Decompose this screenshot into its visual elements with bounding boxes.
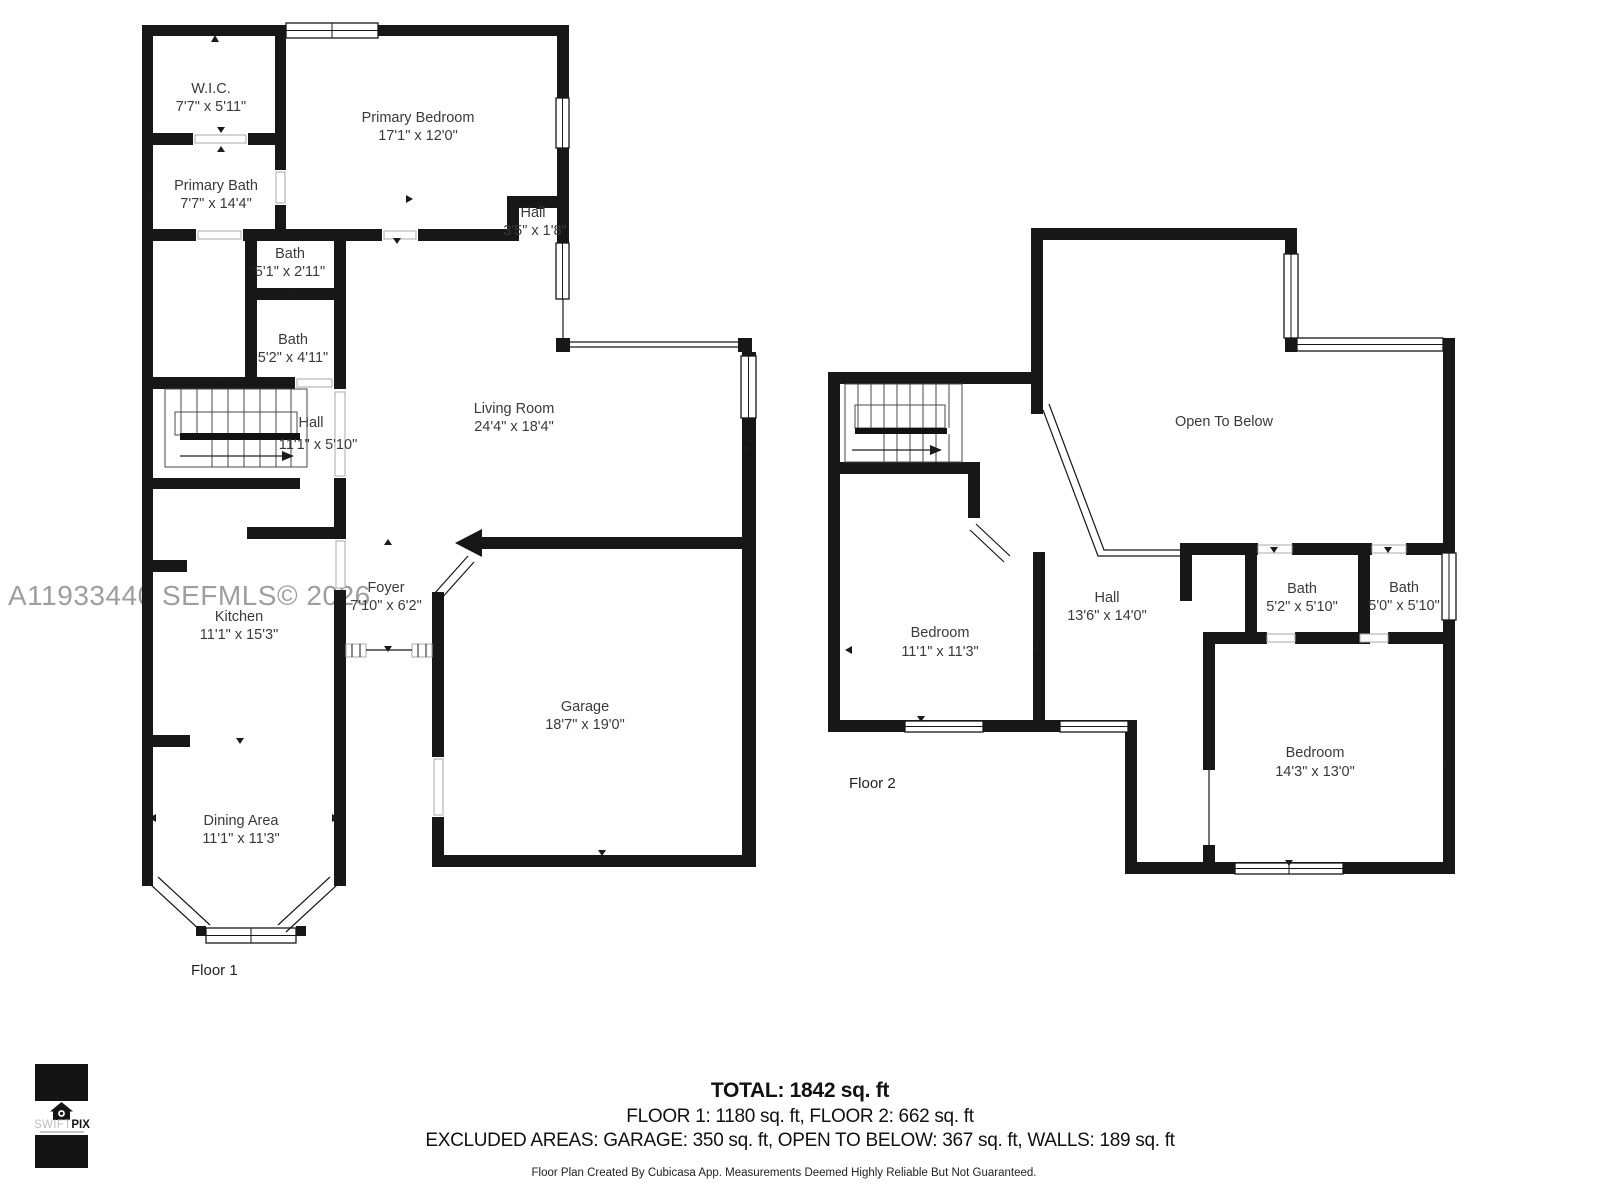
room-label-primary-bedroom: Primary Bedroom	[362, 110, 475, 126]
excluded-areas-text: EXCLUDED AREAS: GARAGE: 350 sq. ft, OPEN…	[0, 1129, 1600, 1152]
room-dims-living-room: 24'4" x 18'4"	[474, 419, 554, 435]
room-dims-hall1: 11'1" x 5'10"	[279, 437, 357, 453]
room-label-primary-bath: Primary Bath	[174, 178, 258, 194]
room-label-bath1: Bath	[275, 246, 305, 262]
swiftpix-logo: SWIFTPIX	[30, 1058, 94, 1175]
room-dims-garage: 18'7" x 19'0"	[545, 717, 625, 733]
room-dims-bath2: 5'2" x 4'11"	[258, 350, 328, 366]
room-label-bedroom14: Bedroom	[1286, 745, 1345, 761]
room-label-bedroom11: Bedroom	[911, 625, 970, 641]
room-label-hall1: Hall	[299, 415, 324, 431]
room-label-living-room: Living Room	[474, 401, 555, 417]
total-area-text: TOTAL: 1842 sq. ft	[0, 1079, 1600, 1103]
room-label-dining-area: Dining Area	[204, 813, 280, 829]
logo-bottom-block	[35, 1135, 88, 1168]
room-label-foyer: Foyer	[367, 580, 404, 596]
floor2-stairs-icon	[845, 384, 962, 462]
room-dims-wic: 7'7" x 5'11"	[176, 99, 246, 115]
room-label-hall-small: Hall	[521, 205, 546, 221]
room-dims-foyer: 7'10" x 6'2"	[350, 598, 421, 614]
room-dims-hall-small: 3'5" x 1'8"	[503, 223, 566, 239]
disclaimer-text: Floor Plan Created By Cubicasa App. Meas…	[0, 1167, 1568, 1179]
floor1-walls	[142, 25, 756, 936]
room-dims-bath-b: 5'0" x 5'10"	[1368, 598, 1439, 614]
floor1-label: Floor 1	[191, 962, 238, 979]
room-label-hall2: Hall	[1095, 590, 1120, 606]
room-label-open-to-below: Open To Below	[1175, 414, 1274, 430]
floor-plan-canvas: W.I.C. 7'7" x 5'11" Primary Bath 7'7" x …	[0, 0, 1600, 1200]
logo-top-block	[35, 1064, 88, 1101]
room-label-garage: Garage	[561, 699, 609, 715]
swiftpix-logo-graphic: SWIFTPIX	[30, 1058, 94, 1170]
floor2-label: Floor 2	[849, 775, 896, 792]
house-icon	[50, 1102, 73, 1120]
room-dims-bedroom11: 11'1" x 11'3"	[901, 644, 978, 660]
room-dims-dining-area: 11'1" x 11'3"	[202, 831, 279, 847]
floor2-door-openings	[1258, 545, 1406, 642]
floor-areas-text: FLOOR 1: 1180 sq. ft, FLOOR 2: 662 sq. f…	[0, 1105, 1600, 1128]
room-dims-bath-a: 5'2" x 5'10"	[1266, 599, 1337, 615]
room-dims-primary-bath: 7'7" x 14'4"	[180, 196, 251, 212]
room-label-bath2: Bath	[278, 332, 308, 348]
floor2-walls	[828, 228, 1455, 874]
room-label-bath-b: Bath	[1389, 580, 1419, 596]
room-dims-bath1: 5'1" x 2'11"	[255, 264, 325, 280]
room-dims-kitchen: 11'1" x 15'3"	[200, 627, 278, 643]
room-label-kitchen: Kitchen	[215, 609, 263, 625]
room-label-bath-a: Bath	[1287, 581, 1317, 597]
room-dims-hall2: 13'6" x 14'0"	[1067, 608, 1147, 624]
room-dims-primary-bedroom: 17'1" x 12'0"	[378, 128, 458, 144]
floor1-door-markers	[145, 35, 751, 856]
area-summary: TOTAL: 1842 sq. ft FLOOR 1: 1180 sq. ft,…	[0, 1079, 1600, 1152]
room-dims-bedroom14: 14'3" x 13'0"	[1275, 764, 1355, 780]
logo-tagline-bar	[40, 1131, 84, 1133]
logo-wordmark: SWIFTPIX	[34, 1119, 90, 1131]
room-label-wic: W.I.C.	[191, 81, 230, 97]
floor1-stairs-icon	[165, 389, 307, 467]
